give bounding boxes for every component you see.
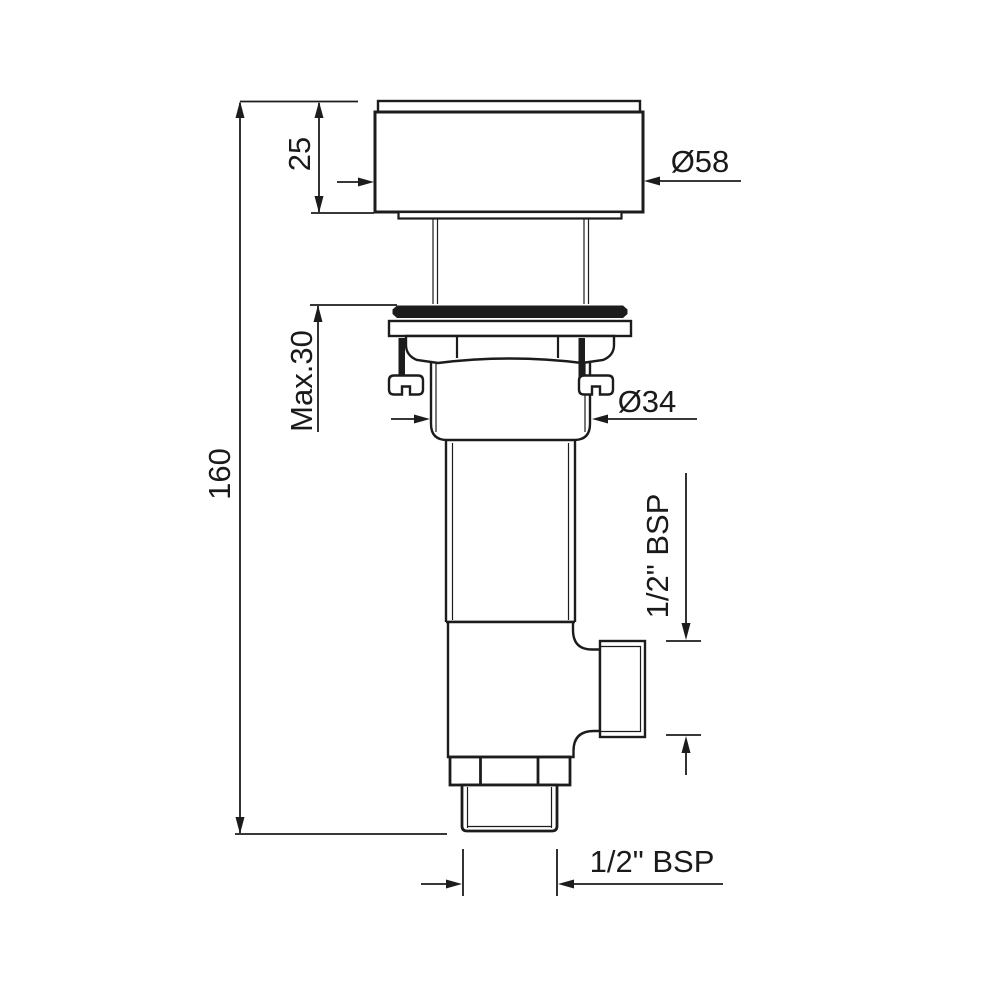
wing-screw-head [389,376,423,395]
side-outlet [600,641,645,737]
hex-outline [450,757,570,785]
technical-drawing-canvas: 160 25 Max.30 Ø58 [0,0,1000,1000]
cap-body [375,112,643,212]
arrow-left [644,177,660,186]
arrow-down [315,196,324,213]
arrow-up [314,305,323,322]
mounting-flange [389,306,631,337]
upper-tube [446,440,575,622]
stem-tube [433,218,589,304]
arrow-right [414,415,430,424]
lower-body-outline [448,622,600,757]
dim-side-outlet-thread: 1/2" BSP [640,473,701,775]
gasket-ring [393,306,628,319]
dim-bottom-thread: 1/2" BSP [421,844,723,896]
fixture [375,101,645,831]
body-34-outline [431,350,590,440]
lower-body [448,622,600,757]
arrow-down [682,623,691,640]
arrow-up [236,101,245,118]
wing-screw-head [579,376,613,395]
wing-screw-shaft [399,338,406,377]
cap [375,101,643,219]
wing-screw-shaft [579,338,586,377]
dim-cap-height: 25 [282,102,374,214]
dim-label-overall-height: 160 [202,448,237,500]
cap-underplate [399,212,622,219]
dim-label-body-diameter: Ø34 [618,384,677,419]
body-34 [431,350,590,440]
arrow-up [682,736,691,753]
arrow-right [358,178,374,187]
dim-label-side-outlet-thread: 1/2" BSP [640,494,675,619]
arrow-left [592,415,608,424]
threaded-stub [462,785,557,831]
side-outlet-outline [600,641,645,737]
trim-ring [389,321,631,336]
arrow-left [558,880,574,889]
dim-label-bottom-thread: 1/2" BSP [590,844,715,879]
arrow-up [315,102,324,119]
dim-label-max-thickness: Max.30 [284,330,319,432]
drawing-page: 160 25 Max.30 Ø58 [0,0,1000,1000]
arrow-right [446,880,462,889]
arrow-down [236,817,245,834]
dim-label-cap-diameter: Ø58 [671,144,730,179]
stub-outline [462,785,557,831]
cap-top-band [378,101,640,112]
dim-max-thickness: Max.30 [284,305,397,432]
hex-nut [450,757,570,785]
dim-label-cap-height: 25 [282,137,317,171]
